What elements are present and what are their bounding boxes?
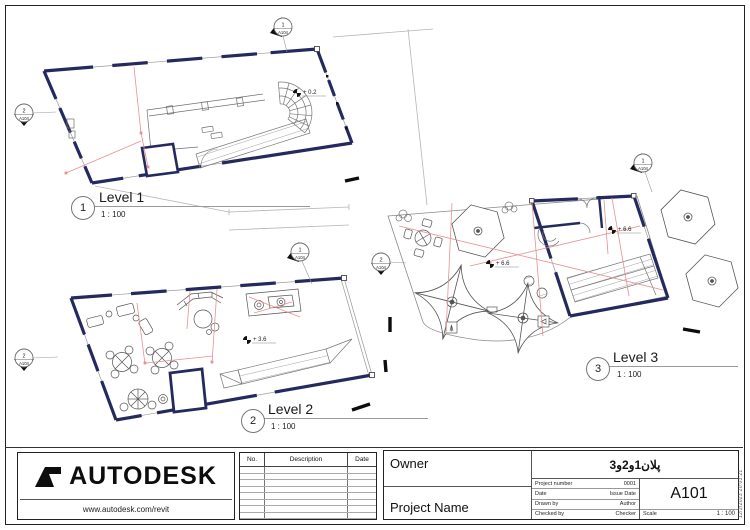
svg-text:+ 6.6: + 6.6 xyxy=(496,261,510,267)
revision-col-no: No. xyxy=(240,453,265,466)
project-name-label: Project Name xyxy=(390,500,469,515)
view3-scale: 1 : 100 xyxy=(617,370,641,379)
view2-scale: 1 : 100 xyxy=(271,422,295,431)
elevation-marker-icon: 2 A104 xyxy=(371,253,406,275)
svg-text:2: 2 xyxy=(22,354,25,360)
svg-text:A104: A104 xyxy=(19,361,29,366)
view3-number-bubble: 3 xyxy=(586,357,610,381)
level1-core-room xyxy=(142,144,178,176)
view2-title: Level 2 xyxy=(268,401,313,417)
autodesk-url: www.autodesk.com/revit xyxy=(18,500,234,514)
project-title: پلان1و2و3 xyxy=(610,458,661,472)
drawn-by-row: Drawn by Author xyxy=(532,500,639,510)
level1-spot-elevation: + 0.2 xyxy=(293,89,326,97)
elevation-marker-icon: 1 A104 xyxy=(270,17,292,52)
svg-text:A104: A104 xyxy=(295,255,305,260)
svg-text:1: 1 xyxy=(281,23,284,29)
date-row: Date Issue Date xyxy=(532,489,639,499)
level2-red-annotations xyxy=(137,289,300,364)
view1-title: Level 1 xyxy=(99,189,144,205)
elevation-marker-icon: 2 A104 xyxy=(14,349,58,371)
svg-text:A104: A104 xyxy=(278,30,288,35)
revision-header: No. Description Date xyxy=(240,453,376,467)
svg-text:1: 1 xyxy=(298,248,301,254)
view2-number-bubble: 2 xyxy=(241,409,265,433)
revision-table: No. Description Date xyxy=(239,452,377,520)
level2-stair xyxy=(238,349,330,384)
svg-text:2: 2 xyxy=(379,258,382,264)
level1-plan: + 0.2 xyxy=(44,47,352,184)
view3-title-line xyxy=(608,366,738,367)
owner-label: Owner xyxy=(390,456,428,471)
print-timestamp: 12/2/2023 20:03:21 xyxy=(738,448,744,518)
level3-table-group xyxy=(400,215,447,262)
elevation-marker-icon: 1 A104 xyxy=(287,242,312,284)
checked-by-row: Checked by Checker xyxy=(532,510,639,519)
autodesk-logo-text: AUTODESK xyxy=(69,462,217,491)
svg-text:+ 3.6: + 3.6 xyxy=(253,337,267,343)
svg-text:A104: A104 xyxy=(638,166,648,171)
revision-col-description: Description xyxy=(265,453,348,466)
elevation-marker-icon: 1 A104 xyxy=(630,153,652,192)
level1-stair xyxy=(196,119,310,168)
view3-title: Level 3 xyxy=(613,349,658,365)
view2-title-line xyxy=(263,418,428,419)
autodesk-logo-icon xyxy=(35,465,62,488)
project-number-row: Project number 0001 xyxy=(532,479,639,489)
level3-sail-canopies xyxy=(406,256,563,358)
drawing-sheet: + 0.2 xyxy=(0,0,750,530)
svg-text:1: 1 xyxy=(641,159,644,165)
view1-scale: 1 : 100 xyxy=(101,210,125,219)
view1-number-bubble: 1 xyxy=(71,196,95,220)
svg-text:A104: A104 xyxy=(19,116,29,121)
context-lines xyxy=(95,29,433,230)
level1-red-annotations xyxy=(65,67,149,174)
svg-text:+ 6.6: + 6.6 xyxy=(618,227,632,233)
project-info-box: Owner Project Name پلان1و2و3 Project num… xyxy=(383,450,739,520)
logo-box: AUTODESK www.autodesk.com/revit xyxy=(17,452,235,520)
view1-title-line xyxy=(93,206,310,207)
level3-plan: + 6.6 + 6.6 xyxy=(388,190,738,358)
level2-core-room xyxy=(170,369,206,412)
scale-row: Scale 1 : 100 xyxy=(640,510,738,519)
svg-text:+ 0.2: + 0.2 xyxy=(303,90,317,96)
revision-col-date: Date xyxy=(348,453,376,466)
level2-spot-elevation: + 3.6 xyxy=(243,336,276,344)
svg-text:2: 2 xyxy=(22,109,25,115)
revision-rows xyxy=(240,467,376,519)
svg-text:A104: A104 xyxy=(376,265,386,270)
titleblock-top-rule xyxy=(5,447,743,448)
elevation-marker-icon: 2 A104 xyxy=(14,104,56,126)
sheet-number: A101 xyxy=(670,485,707,503)
level2-plan: + 3.6 xyxy=(71,276,375,421)
